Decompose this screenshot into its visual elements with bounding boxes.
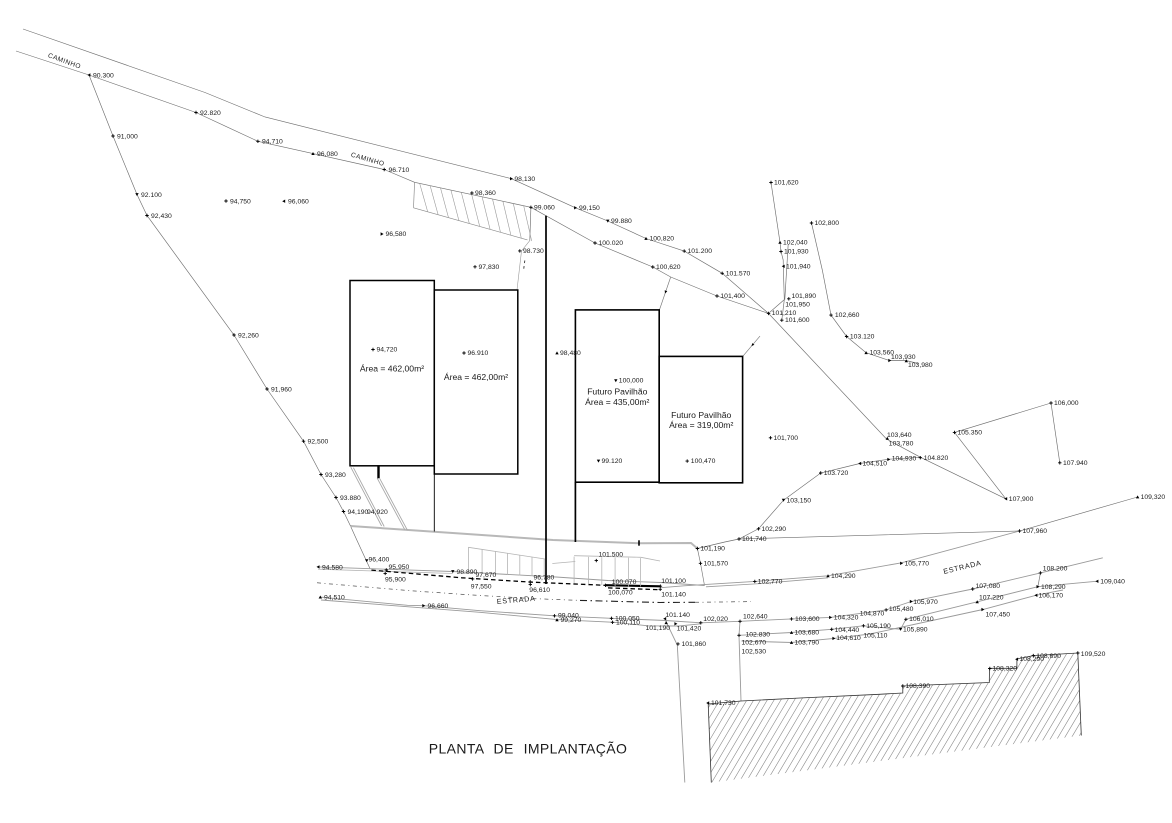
svg-text:96,580: 96,580 xyxy=(386,231,407,238)
svg-text:104,440: 104,440 xyxy=(835,627,860,634)
svg-text:102,530: 102,530 xyxy=(742,649,767,656)
svg-text:109,040: 109,040 xyxy=(1100,578,1125,585)
svg-text:101,620: 101,620 xyxy=(774,180,799,187)
svg-text:91,000: 91,000 xyxy=(117,134,138,141)
svg-text:100,070: 100,070 xyxy=(608,589,633,596)
svg-text:103,150: 103,150 xyxy=(787,497,812,504)
svg-text:94.580: 94.580 xyxy=(322,564,343,571)
svg-text:106,000: 106,000 xyxy=(1054,400,1079,407)
svg-text:102.830: 102.830 xyxy=(746,631,771,638)
svg-text:107,080: 107,080 xyxy=(976,583,1001,590)
svg-text:98,480: 98,480 xyxy=(560,350,581,357)
svg-text:104,930: 104,930 xyxy=(892,455,917,462)
svg-text:100.070: 100.070 xyxy=(612,579,637,586)
svg-text:102,660: 102,660 xyxy=(835,312,860,319)
svg-text:103,790: 103,790 xyxy=(795,640,820,647)
svg-text:104,510: 104,510 xyxy=(863,461,888,468)
svg-text:Área = 319,00m²: Área = 319,00m² xyxy=(669,420,733,430)
svg-text:105,770: 105,770 xyxy=(905,560,930,567)
svg-text:108,320: 108,320 xyxy=(993,666,1018,673)
svg-text:96,660: 96,660 xyxy=(428,603,449,610)
svg-text:100,470: 100,470 xyxy=(691,458,716,465)
svg-text:109,320: 109,320 xyxy=(1141,494,1166,501)
svg-text:103,680: 103,680 xyxy=(795,630,820,637)
svg-text:101,600: 101,600 xyxy=(785,317,810,324)
svg-text:104,610: 104,610 xyxy=(836,635,861,642)
svg-text:109,520: 109,520 xyxy=(1081,651,1106,658)
svg-text:108.200: 108.200 xyxy=(1043,566,1068,573)
svg-text:101,190: 101,190 xyxy=(700,546,725,553)
svg-text:103,980: 103,980 xyxy=(908,362,933,369)
svg-text:101.500: 101.500 xyxy=(599,551,624,558)
svg-text:97,670: 97,670 xyxy=(476,572,497,579)
svg-text:105,890: 105,890 xyxy=(903,626,928,633)
svg-text:107,900: 107,900 xyxy=(1009,496,1034,503)
svg-text:101,940: 101,940 xyxy=(786,263,811,270)
svg-text:100,000: 100,000 xyxy=(619,378,644,385)
svg-text:108,690: 108,690 xyxy=(1036,653,1061,660)
svg-text:92,430: 92,430 xyxy=(151,213,172,220)
svg-text:95,900: 95,900 xyxy=(385,576,406,583)
svg-text:96,610: 96,610 xyxy=(529,587,550,594)
svg-text:101,860: 101,860 xyxy=(682,641,707,648)
svg-text:102,640: 102,640 xyxy=(743,614,768,621)
svg-text:93.880: 93.880 xyxy=(340,495,361,502)
svg-text:96.710: 96.710 xyxy=(389,167,410,174)
svg-text:94,190: 94,190 xyxy=(348,509,369,516)
svg-text:96,780: 96,780 xyxy=(534,575,555,582)
svg-text:Área = 462,00m²: Área = 462,00m² xyxy=(360,364,424,374)
svg-text:102,040: 102,040 xyxy=(783,239,808,246)
svg-text:92.820: 92.820 xyxy=(200,110,221,117)
svg-text:103.120: 103.120 xyxy=(850,334,875,341)
svg-text:102,770: 102,770 xyxy=(758,579,783,586)
svg-text:102,800: 102,800 xyxy=(815,220,840,227)
svg-text:107.940: 107.940 xyxy=(1063,460,1088,467)
svg-text:104,290: 104,290 xyxy=(831,573,856,580)
svg-text:99.880: 99.880 xyxy=(611,218,632,225)
svg-text:Área = 462,00m²: Área = 462,00m² xyxy=(444,372,508,382)
svg-text:101,190: 101,190 xyxy=(646,625,671,632)
svg-text:101.140: 101.140 xyxy=(661,591,686,598)
svg-text:105,480: 105,480 xyxy=(889,606,914,613)
svg-text:107,450: 107,450 xyxy=(986,612,1011,619)
svg-text:101.570: 101.570 xyxy=(726,270,751,277)
svg-text:94,750: 94,750 xyxy=(230,199,251,206)
svg-text:104.820: 104.820 xyxy=(924,455,949,462)
svg-text:107,960: 107,960 xyxy=(1023,528,1048,535)
svg-text:101.100: 101.100 xyxy=(661,578,686,585)
svg-text:101.200: 101.200 xyxy=(688,248,713,255)
svg-text:99.060: 99.060 xyxy=(534,204,555,211)
svg-text:103,640: 103,640 xyxy=(887,432,912,439)
svg-text:105,110: 105,110 xyxy=(863,632,887,639)
svg-text:99,270: 99,270 xyxy=(561,617,582,624)
svg-text:96,400: 96,400 xyxy=(369,557,390,564)
svg-text:101,420: 101,420 xyxy=(677,626,702,633)
svg-text:93,280: 93,280 xyxy=(325,472,346,479)
svg-text:94,510: 94,510 xyxy=(324,595,345,602)
svg-text:98.890: 98.890 xyxy=(457,569,478,576)
svg-text:98,130: 98,130 xyxy=(514,176,535,183)
svg-text:96,080: 96,080 xyxy=(317,151,338,158)
svg-text:100,820: 100,820 xyxy=(650,235,675,242)
svg-text:97,830: 97,830 xyxy=(479,264,500,271)
svg-text:Futuro Pavilhão: Futuro Pavilhão xyxy=(587,387,647,397)
svg-text:103.720: 103.720 xyxy=(824,470,849,477)
svg-text:103,600: 103,600 xyxy=(795,616,820,623)
svg-text:Futuro Pavilhão: Futuro Pavilhão xyxy=(671,410,731,420)
svg-text:100,620: 100,620 xyxy=(656,264,681,271)
svg-text:101,570: 101,570 xyxy=(704,560,729,567)
svg-text:108,290: 108,290 xyxy=(1041,584,1066,591)
svg-text:96.910: 96.910 xyxy=(468,350,489,357)
svg-text:100.020: 100.020 xyxy=(599,240,624,247)
svg-text:90.300: 90.300 xyxy=(93,73,114,80)
svg-text:102,670: 102,670 xyxy=(742,640,767,647)
svg-text:101,740: 101,740 xyxy=(742,536,767,543)
svg-text:103,780: 103,780 xyxy=(889,441,914,448)
svg-text:98.730: 98.730 xyxy=(523,248,544,255)
svg-text:98,360: 98,360 xyxy=(475,190,496,197)
svg-text:105.350: 105.350 xyxy=(958,430,983,437)
svg-text:101,400: 101,400 xyxy=(720,293,745,300)
svg-text:105,190: 105,190 xyxy=(866,623,891,630)
svg-text:107.220: 107.220 xyxy=(979,595,1004,602)
svg-text:97,550: 97,550 xyxy=(471,583,492,590)
svg-text:104,870: 104,870 xyxy=(860,610,885,617)
svg-text:106,010: 106,010 xyxy=(909,616,934,623)
svg-text:94,710: 94,710 xyxy=(262,139,283,146)
svg-text:PLANTA DE IMPLANTAÇÃO: PLANTA DE IMPLANTAÇÃO xyxy=(429,741,628,757)
svg-text:101,730: 101,730 xyxy=(711,700,736,707)
svg-text:103,930: 103,930 xyxy=(891,354,916,361)
svg-text:Área = 435,00m²: Área = 435,00m² xyxy=(585,397,649,407)
svg-text:96,060: 96,060 xyxy=(288,199,309,206)
svg-text:100,110: 100,110 xyxy=(616,619,640,626)
svg-text:102,290: 102,290 xyxy=(762,526,787,533)
svg-text:94,720: 94,720 xyxy=(377,347,398,354)
svg-text:99.120: 99.120 xyxy=(602,458,623,465)
svg-text:99,150: 99,150 xyxy=(579,205,600,212)
svg-text:106,170: 106,170 xyxy=(1039,593,1064,600)
svg-text:101.140: 101.140 xyxy=(665,612,690,619)
svg-text:92,500: 92,500 xyxy=(308,439,329,446)
svg-text:104,320: 104,320 xyxy=(834,614,859,621)
svg-text:101,890: 101,890 xyxy=(792,293,817,300)
svg-text:101,950: 101,950 xyxy=(785,302,810,309)
svg-text:105,970: 105,970 xyxy=(913,599,938,606)
svg-text:101,700: 101,700 xyxy=(774,435,799,442)
svg-text:94,920: 94,920 xyxy=(367,509,388,516)
svg-text:108,390: 108,390 xyxy=(906,683,931,690)
svg-text:102,020: 102,020 xyxy=(703,616,728,623)
svg-text:91,960: 91,960 xyxy=(271,386,292,393)
svg-text:95,950: 95,950 xyxy=(389,564,410,571)
svg-text:92,260: 92,260 xyxy=(238,333,259,340)
svg-text:92.100: 92.100 xyxy=(141,192,162,199)
svg-text:101,930: 101,930 xyxy=(784,249,809,256)
